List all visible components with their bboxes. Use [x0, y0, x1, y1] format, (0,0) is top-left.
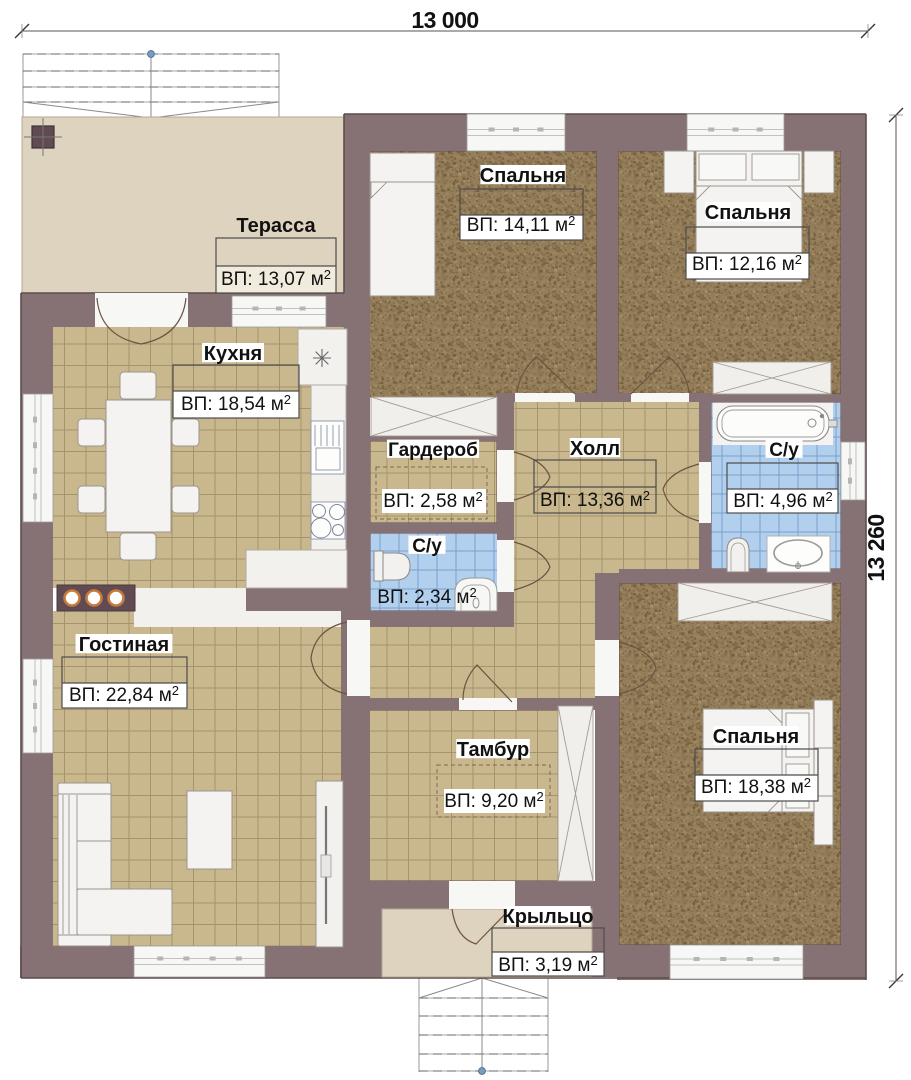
svg-text:ВП: 2,34 м2: ВП: 2,34 м2 [377, 585, 476, 608]
svg-text:Спальня: Спальня [713, 726, 799, 748]
svg-text:ВП: 2,58 м2: ВП: 2,58 м2 [383, 489, 482, 512]
svg-text:Холл: Холл [570, 438, 620, 460]
svg-text:13 000: 13 000 [411, 7, 478, 33]
svg-text:С/у: С/у [769, 440, 799, 461]
svg-text:ВП: 4,96 м2: ВП: 4,96 м2 [733, 489, 832, 512]
svg-text:Спальня: Спальня [480, 165, 566, 187]
svg-text:Тамбур: Тамбур [457, 739, 530, 761]
svg-text:ВП: 18,54 м2: ВП: 18,54 м2 [181, 392, 291, 415]
svg-text:ВП: 12,16 м2: ВП: 12,16 м2 [692, 252, 802, 275]
svg-text:13 260: 13 260 [863, 514, 889, 581]
svg-text:Гардероб: Гардероб [388, 440, 478, 461]
svg-text:С/у: С/у [412, 536, 442, 557]
svg-text:ВП: 13,36 м2: ВП: 13,36 м2 [540, 488, 650, 511]
svg-text:ВП: 13,07 м2: ВП: 13,07 м2 [221, 267, 331, 290]
svg-text:ВП: 18,38 м2: ВП: 18,38 м2 [701, 775, 811, 798]
svg-text:ВП: 22,84 м2: ВП: 22,84 м2 [69, 683, 179, 706]
svg-text:Спальня: Спальня [705, 202, 791, 224]
svg-text:Кухня: Кухня [204, 343, 262, 365]
svg-text:Терасса: Терасса [236, 215, 316, 237]
svg-text:ВП: 3,19 м2: ВП: 3,19 м2 [498, 953, 597, 976]
svg-text:Крыльцо: Крыльцо [502, 906, 593, 928]
svg-text:Гостиная: Гостиная [79, 634, 169, 656]
svg-text:ВП: 14,11 м2: ВП: 14,11 м2 [467, 213, 576, 236]
svg-text:ВП: 9,20 м2: ВП: 9,20 м2 [444, 789, 543, 812]
